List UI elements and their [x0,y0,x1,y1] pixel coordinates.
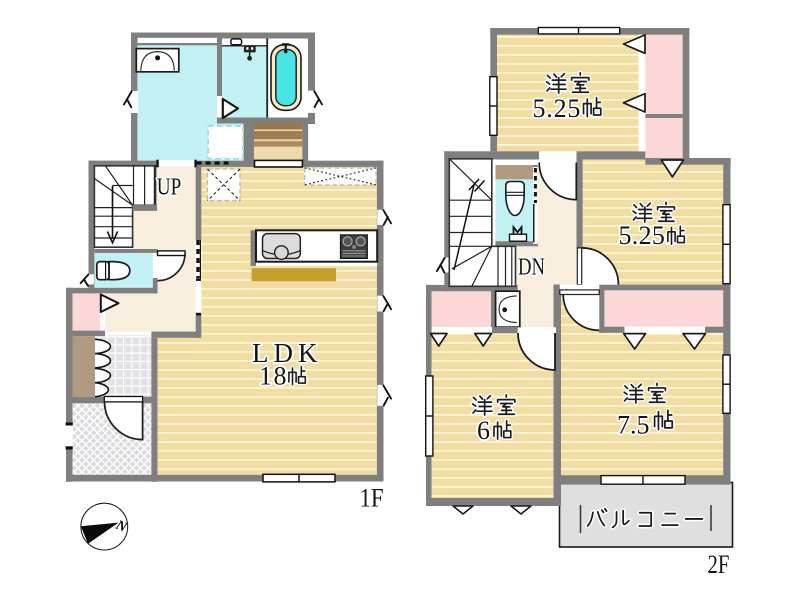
svg-text:5.25: 5.25 [533,94,582,123]
svg-text:2F: 2F [708,551,730,580]
svg-text:1F: 1F [360,484,384,513]
svg-text:5.25: 5.25 [619,221,666,250]
svg-text:UP: UP [157,174,182,201]
svg-text:6: 6 [477,416,490,445]
svg-text:18: 18 [259,362,288,391]
svg-text:DN: DN [518,253,545,280]
svg-text:7.5: 7.5 [617,411,650,440]
